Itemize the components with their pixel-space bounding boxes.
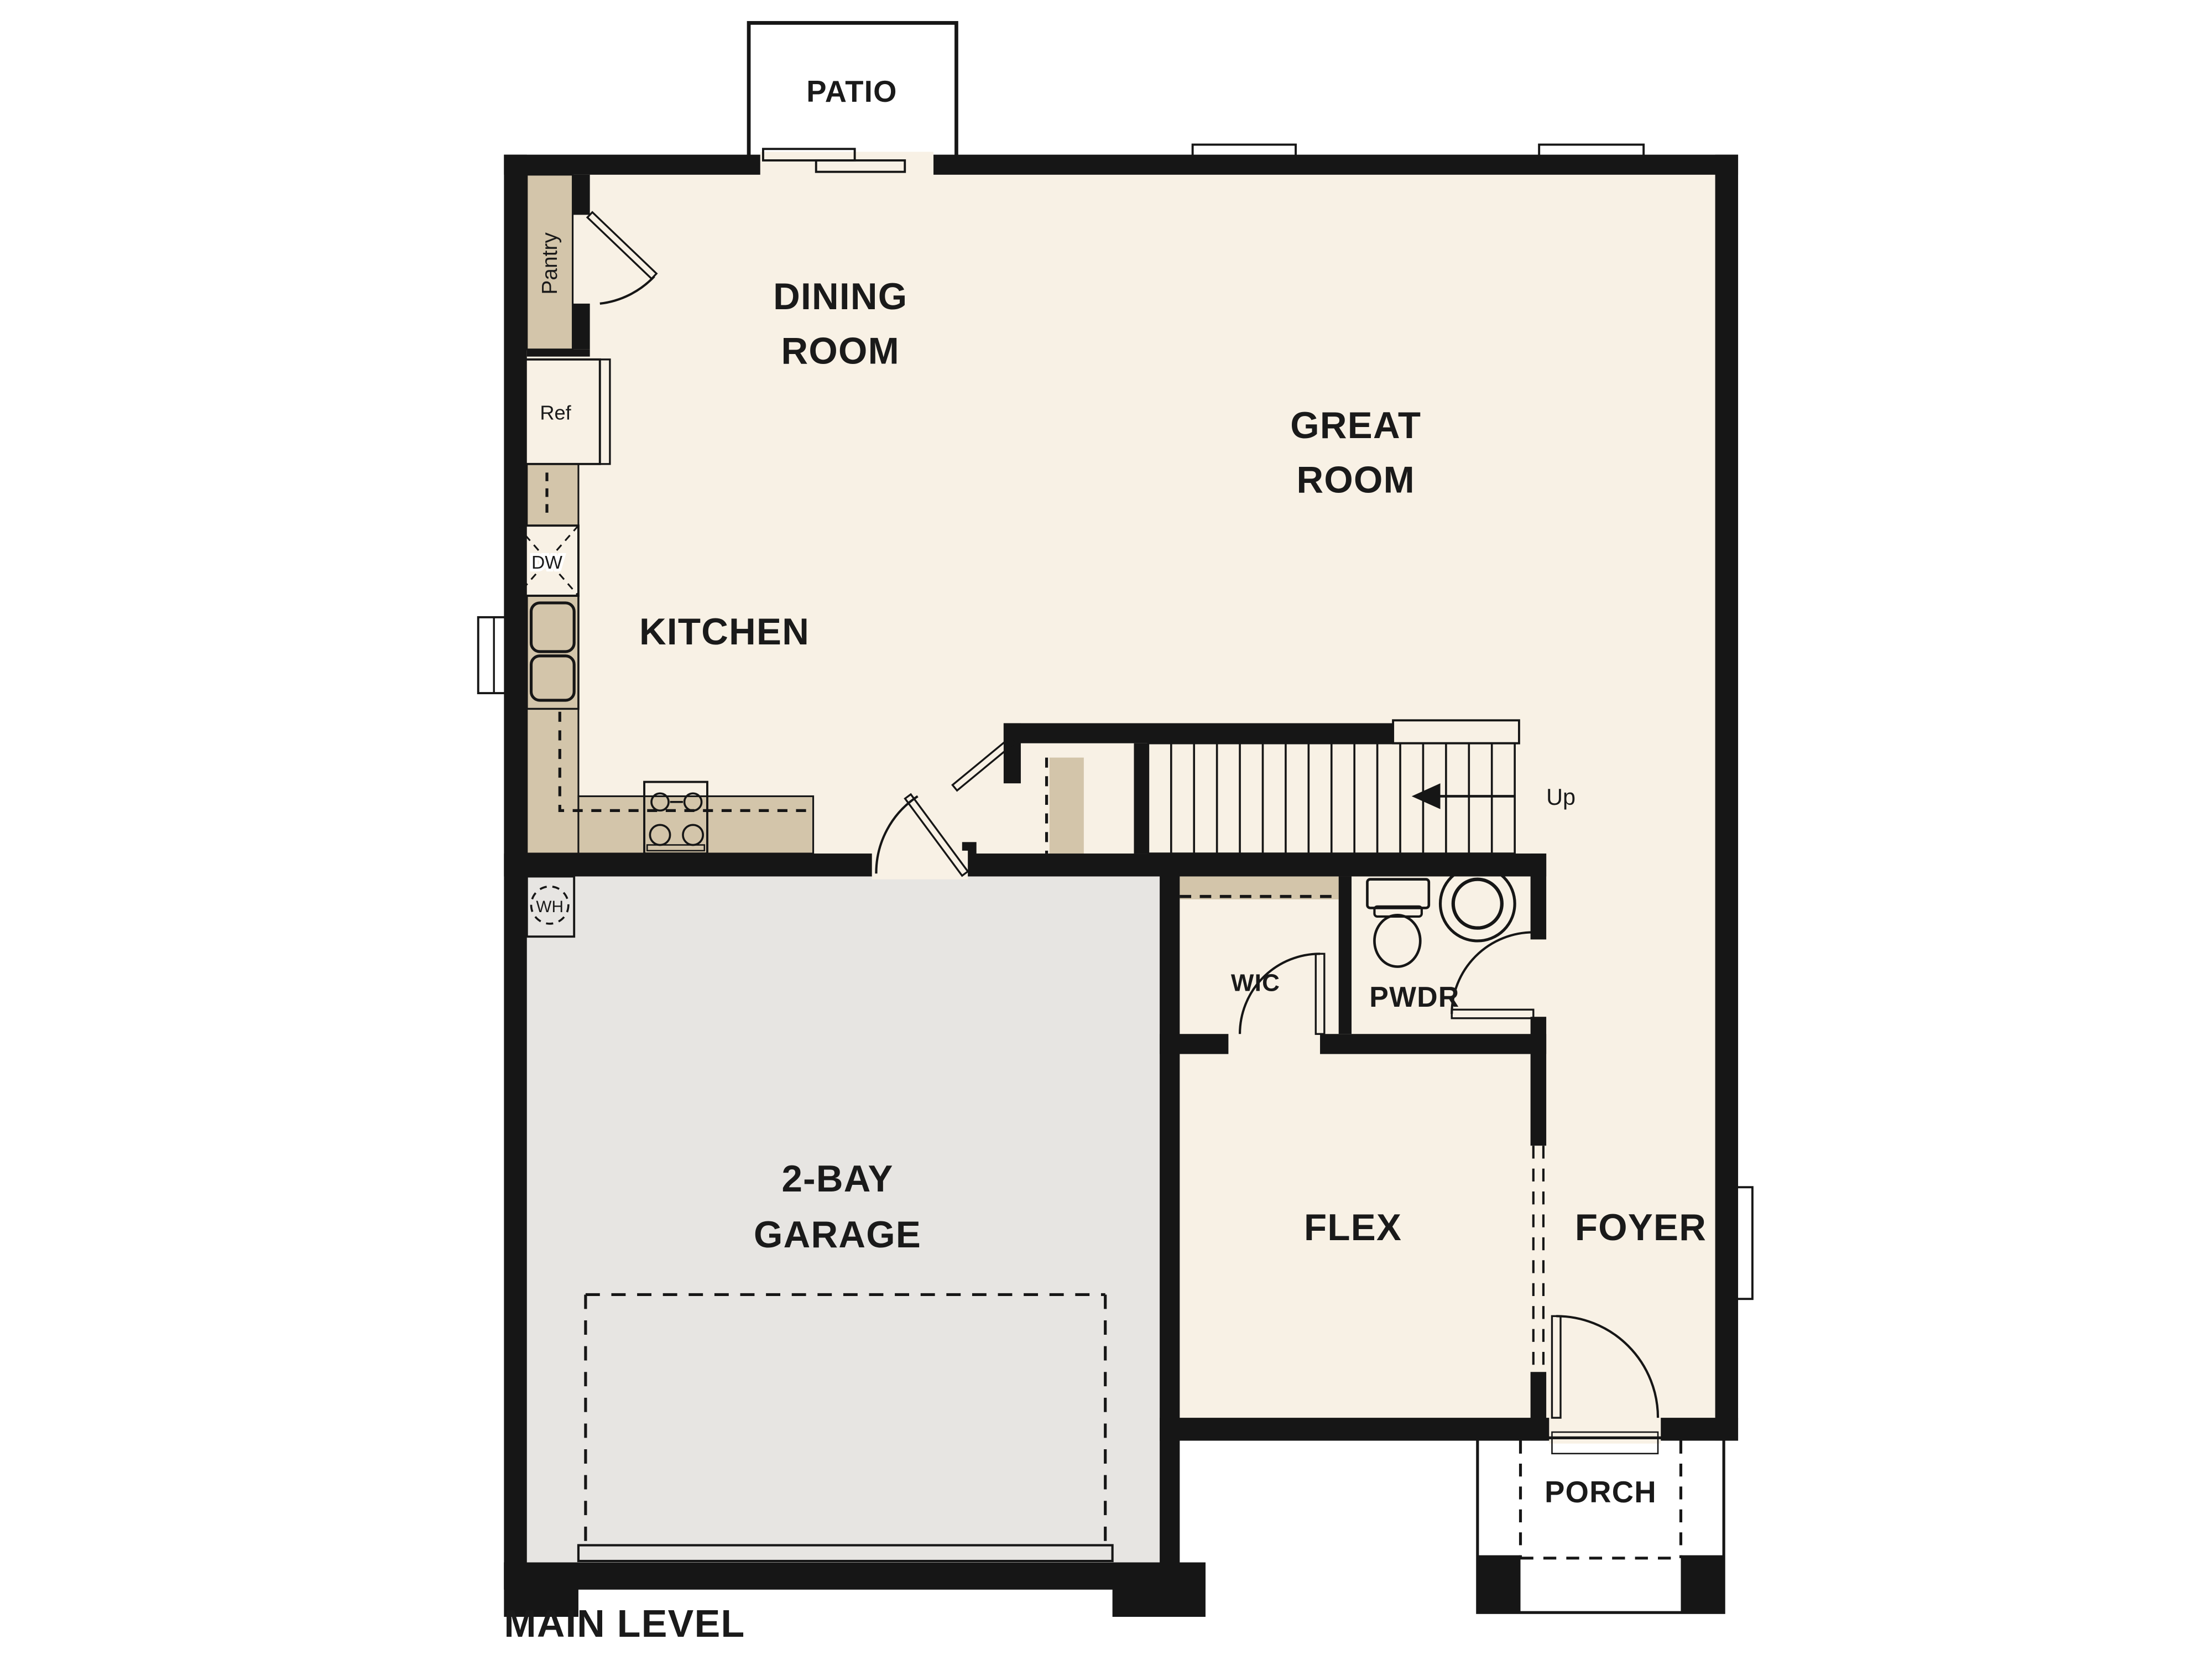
stairs-up-label: Up: [1546, 784, 1575, 810]
wall-wic-pwdr-divider: [1339, 876, 1352, 1034]
wall-kitchen-garage: [504, 854, 1546, 876]
wall-garage-bottom: [504, 1563, 1206, 1590]
patio-label: PATIO: [806, 75, 898, 108]
opening-wic-door: [1228, 1031, 1320, 1057]
floor-plan-canvas: Up Ref DW WH: [0, 0, 2212, 1660]
water-heater-label: WH: [536, 898, 564, 916]
kitchen-label: KITCHEN: [639, 611, 810, 653]
pwdr-label: PWDR: [1369, 981, 1459, 1013]
garage-label-line2: GARAGE: [754, 1214, 921, 1256]
opening-patio-door: [760, 152, 933, 178]
garage-label-line1: 2-BAY: [781, 1158, 893, 1200]
wall-pantry-bottom: [527, 350, 590, 357]
great-room-label-line1: GREAT: [1290, 405, 1421, 446]
porch-post-right: [1681, 1555, 1724, 1613]
great-room-label-line2: ROOM: [1297, 460, 1416, 501]
foyer-label: FOYER: [1575, 1207, 1707, 1248]
wall-garage-right: [1160, 854, 1180, 1590]
counter-below-ref: [527, 464, 578, 525]
wall-pwdr-right-lower: [1531, 1014, 1546, 1146]
wall-pantry-lower: [573, 304, 590, 350]
wall-garage-corner-right: [1113, 1563, 1206, 1617]
porch-area: [1478, 1432, 1724, 1612]
wall-pwdr-right-upper: [1531, 854, 1546, 943]
counter-left-run: [527, 709, 578, 854]
opening-pwdr-door: [1527, 939, 1549, 1017]
wall-right: [1715, 155, 1738, 1441]
flex-label: FLEX: [1304, 1207, 1402, 1248]
wall-wic-bottom: [1160, 1034, 1546, 1054]
porch-post-left: [1478, 1555, 1521, 1613]
dining-room-label-line1: DINING: [773, 276, 907, 318]
pantry-label: Pantry: [538, 232, 562, 295]
floor-plan-page: Up Ref DW WH: [0, 0, 2212, 1660]
wall-foyer-stub: [1531, 1372, 1546, 1440]
wall-pantry-upper: [573, 175, 590, 215]
plan-title: MAIN LEVEL: [504, 1602, 745, 1645]
wall-stair-jog: [1004, 723, 1021, 783]
hall-closet-shelf: [1050, 758, 1084, 854]
dishwasher-label: DW: [531, 553, 562, 573]
wall-stair-left: [1134, 743, 1148, 854]
wic-label: WIC: [1231, 970, 1280, 997]
wall-stair-top: [1004, 723, 1393, 743]
dining-room-label-line2: ROOM: [781, 331, 900, 372]
refrigerator-label: Ref: [540, 402, 571, 424]
porch-label: PORCH: [1545, 1475, 1657, 1509]
